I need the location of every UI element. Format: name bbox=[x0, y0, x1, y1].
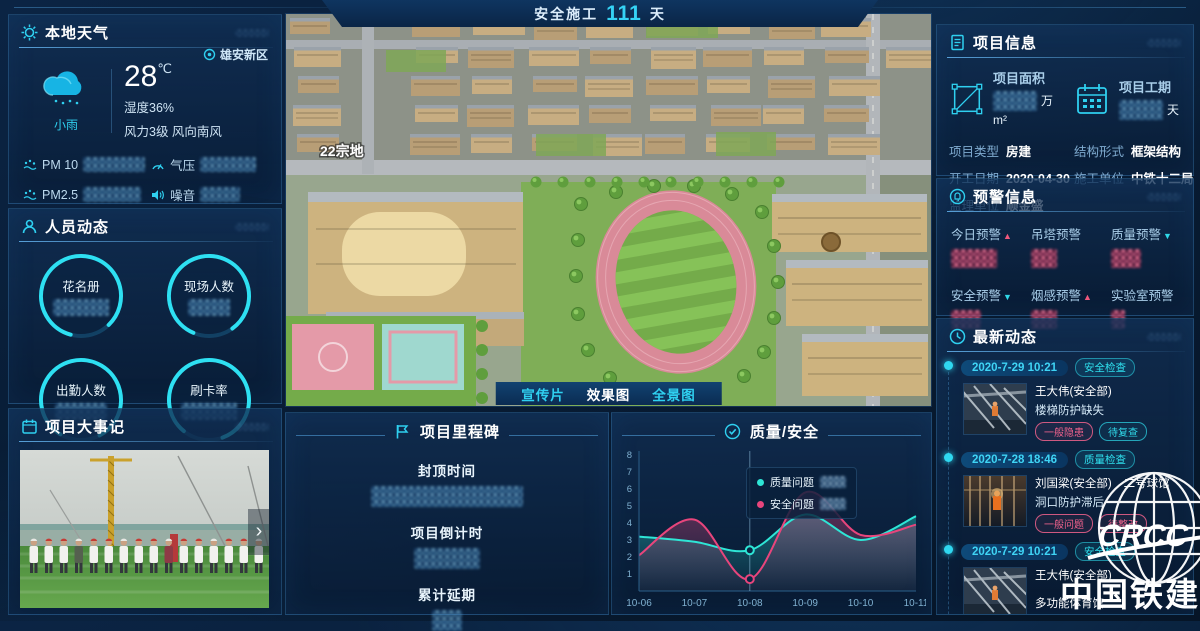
warning-cell-0: 今日预警▲ bbox=[951, 224, 1025, 268]
gear-icon bbox=[21, 24, 38, 41]
update-tags: 一般问题待整改 bbox=[1035, 514, 1170, 533]
weather-header: 本地天气 bbox=[9, 15, 281, 48]
dust-particles-icon bbox=[23, 189, 37, 201]
header-decoration bbox=[1147, 193, 1181, 201]
personnel-ring-0[interactable]: 花名册 bbox=[35, 250, 127, 342]
calendar-icon bbox=[1073, 80, 1111, 118]
update-issue: 楼梯防护缺失 bbox=[1035, 614, 1187, 615]
redacted-value bbox=[1119, 100, 1163, 120]
location-pin-icon bbox=[203, 48, 216, 61]
metric-pm10: PM 10 bbox=[23, 155, 145, 174]
safety-days-banner: 安全施工 111 天 bbox=[322, 0, 878, 28]
update-item: 2020-7-28 18:46 质量检查 刘国梁(安全部)二号球馆 洞口防护滞后… bbox=[961, 450, 1187, 533]
trend-up-icon: ▲ bbox=[1003, 231, 1012, 241]
redacted-value bbox=[188, 299, 230, 316]
warning-label: 实验室预警 bbox=[1111, 285, 1185, 304]
temperature-unit: ℃ bbox=[157, 61, 172, 76]
status-tag: 待整改 bbox=[1099, 514, 1147, 533]
warning-label: 安全预警▼ bbox=[951, 285, 1025, 304]
svg-text:4: 4 bbox=[627, 518, 632, 529]
update-person: 刘国梁(安全部) bbox=[1035, 475, 1112, 491]
redacted-value bbox=[53, 299, 109, 316]
stat-project-area: 项目面积 万m² bbox=[949, 68, 1063, 129]
svg-text:5: 5 bbox=[627, 501, 632, 512]
update-issue: 楼梯防护缺失 bbox=[1035, 402, 1147, 418]
redacted-value bbox=[83, 187, 141, 202]
ring-label: 出勤人数 bbox=[56, 380, 106, 399]
header-wing bbox=[622, 428, 715, 436]
land-parcel-label: 22宗地 bbox=[320, 143, 364, 159]
header-decoration bbox=[1147, 39, 1181, 47]
update-category-badge: 安全检查 bbox=[1075, 358, 1135, 377]
carousel-next-button[interactable]: › bbox=[248, 509, 270, 555]
redacted-value bbox=[414, 548, 480, 569]
milestone-label: 项目倒计时 bbox=[411, 522, 484, 542]
personnel-title: 人员动态 bbox=[45, 216, 109, 237]
redacted-value bbox=[200, 157, 256, 172]
update-date-badge: 2020-7-28 18:46 bbox=[961, 452, 1068, 468]
svg-text:10-06: 10-06 bbox=[626, 598, 652, 609]
project-3d-view[interactable]: 22宗地 宣传片 效果图 全景图 bbox=[285, 13, 932, 407]
svg-text:1: 1 bbox=[627, 569, 632, 580]
tooltip-quality-row: 质量问题 bbox=[757, 474, 846, 490]
panel-quality-safety: 质量/安全 1234567810-0610-0710-0810-0910-101… bbox=[611, 412, 932, 615]
milestone-title: 项目里程碑 bbox=[420, 421, 500, 442]
panel-personnel: 人员动态 花名册现场人数出勤人数刷卡率 bbox=[8, 208, 282, 404]
update-date-badge: 2020-7-29 10:21 bbox=[961, 360, 1068, 376]
ring-label: 现场人数 bbox=[184, 276, 234, 295]
milestone-header: 项目里程碑 bbox=[286, 413, 608, 445]
header-decoration bbox=[235, 29, 269, 37]
svg-text:10-09: 10-09 bbox=[792, 598, 818, 609]
svg-text:6: 6 bbox=[627, 484, 632, 495]
tab-promo-video[interactable]: 宣传片 bbox=[521, 384, 565, 404]
panel-latest-updates: 最新动态 2020-7-29 10:21 安全检查 王大伟(安全部) 楼梯防护缺… bbox=[936, 318, 1194, 615]
header-wing bbox=[828, 428, 921, 436]
person-icon bbox=[21, 218, 38, 235]
panel-project-events: 项目大事记 › bbox=[8, 408, 282, 615]
warnings-grid: 今日预警▲吊塔预警质量预警▼安全预警▼烟感预警▲实验室预警 bbox=[951, 224, 1185, 329]
dust-particles-icon bbox=[23, 159, 37, 171]
updates-list: 2020-7-29 10:21 安全检查 王大伟(安全部) 楼梯防护缺失 一般隐… bbox=[961, 358, 1187, 615]
header-decoration bbox=[1147, 333, 1181, 341]
dashboard: 安全施工 111 天 22宗地 宣传片 效果图 全景图 本地天气 bbox=[0, 0, 1200, 621]
header-decoration bbox=[235, 223, 269, 231]
redacted-value bbox=[820, 498, 846, 510]
shield-check-icon bbox=[724, 423, 741, 440]
alarm-bell-icon bbox=[949, 188, 966, 205]
update-issue: 洞口防护滞后 bbox=[1035, 494, 1170, 510]
redacted-warning-value bbox=[1031, 249, 1057, 268]
tab-panorama[interactable]: 全景图 bbox=[652, 384, 696, 404]
document-icon bbox=[949, 34, 966, 51]
warning-label: 烟感预警▲ bbox=[1031, 285, 1105, 304]
milestone-label: 封顶时间 bbox=[418, 460, 476, 480]
update-location: 二号球馆 bbox=[1124, 475, 1170, 491]
redacted-value bbox=[83, 157, 145, 172]
field-project-type: 项目类型房建 bbox=[949, 141, 1070, 160]
header-wing bbox=[509, 428, 598, 436]
warning-cell-2: 质量预警▼ bbox=[1111, 224, 1185, 268]
redacted-value bbox=[820, 476, 846, 488]
series-dot bbox=[757, 501, 764, 508]
warning-cell-1: 吊塔预警 bbox=[1031, 224, 1105, 268]
update-person: 王大伟(安全部) bbox=[1035, 567, 1112, 583]
event-photo-wrap: › bbox=[20, 450, 270, 613]
stat-project-duration: 项目工期 天 bbox=[1073, 68, 1187, 129]
update-photo-thumbnail[interactable] bbox=[963, 475, 1027, 527]
status-tag: 待复查 bbox=[1099, 422, 1147, 441]
header-decoration bbox=[235, 423, 269, 431]
redacted-value bbox=[371, 486, 523, 507]
panel-project-info: 项目信息 项目面积 万m² bbox=[936, 24, 1194, 176]
view-tabs: 宣传片 效果图 全景图 bbox=[495, 382, 722, 405]
metric-label: PM 10 bbox=[42, 158, 78, 172]
project-info-header: 项目信息 bbox=[937, 25, 1193, 58]
wind-label: 风力3级 风向南风 bbox=[124, 121, 222, 140]
milestone-body: 封顶时间 项目倒计时 累计延期 bbox=[286, 451, 608, 631]
warning-label: 今日预警▲ bbox=[951, 224, 1025, 243]
events-header: 项目大事记 bbox=[9, 409, 281, 442]
ring-label: 刷卡率 bbox=[190, 380, 228, 399]
divider bbox=[111, 69, 112, 133]
3d-render: 22宗地 bbox=[286, 14, 931, 406]
redacted-value bbox=[200, 187, 240, 202]
trend-down-icon: ▼ bbox=[1003, 292, 1012, 302]
updates-title: 最新动态 bbox=[973, 326, 1037, 347]
series-label: 安全问题 bbox=[770, 496, 814, 512]
area-outline-icon bbox=[949, 80, 985, 118]
timeline-dot bbox=[944, 361, 953, 370]
metric-label: PM2.5 bbox=[42, 188, 78, 202]
tooltip-safety-row: 安全问题 bbox=[757, 496, 846, 512]
svg-text:2: 2 bbox=[627, 552, 632, 563]
warning-label: 质量预警▼ bbox=[1111, 224, 1185, 243]
warning-label: 吊塔预警 bbox=[1031, 224, 1105, 243]
humidity-label: 湿度36% bbox=[124, 97, 222, 116]
chart-title: 质量/安全 bbox=[750, 421, 819, 442]
stat-unit: 天 bbox=[1167, 103, 1179, 117]
update-item: 2020-7-29 10:21 安全检查 王大伟(安全部) 楼梯防护缺失 一般隐… bbox=[961, 358, 1187, 441]
tab-render-view[interactable]: 效果图 bbox=[587, 384, 631, 404]
flag-icon bbox=[394, 423, 411, 440]
svg-text:10-07: 10-07 bbox=[682, 598, 708, 609]
calendar-icon bbox=[21, 418, 38, 435]
redacted-value bbox=[993, 91, 1037, 111]
updates-header: 最新动态 bbox=[937, 319, 1193, 352]
weather-metrics: PM 10 气压 PM2.5 bbox=[23, 155, 271, 204]
redacted-warning-value bbox=[1111, 249, 1141, 268]
stat-label: 项目面积 bbox=[993, 68, 1063, 87]
svg-text:10-10: 10-10 bbox=[848, 598, 874, 609]
speaker-icon bbox=[151, 189, 165, 201]
event-photo[interactable] bbox=[20, 450, 269, 608]
chart-header: 质量/安全 bbox=[612, 413, 931, 445]
metric-pressure: 气压 bbox=[151, 155, 271, 174]
header-wing bbox=[296, 428, 385, 436]
update-category-badge: 安全检查 bbox=[1075, 542, 1135, 561]
weather-title: 本地天气 bbox=[45, 22, 109, 43]
timeline-dot bbox=[944, 453, 953, 462]
gauge-icon bbox=[151, 159, 165, 171]
update-category-badge: 质量检查 bbox=[1075, 450, 1135, 469]
update-date-badge: 2020-7-29 10:21 bbox=[961, 544, 1068, 560]
location-badge: 雄安新区 bbox=[203, 46, 268, 63]
timeline-dot bbox=[944, 545, 953, 554]
personnel-header: 人员动态 bbox=[9, 209, 281, 242]
location-label: 雄安新区 bbox=[220, 46, 268, 63]
weather-main: 小雨 28℃ 湿度36% 风力3级 风向南风 bbox=[23, 62, 273, 140]
panel-milestone: 项目里程碑 封顶时间 项目倒计时 累计延期 bbox=[285, 412, 609, 615]
update-photo-thumbnail[interactable] bbox=[963, 567, 1027, 615]
svg-text:7: 7 bbox=[627, 467, 632, 478]
metric-label: 噪音 bbox=[170, 185, 195, 204]
events-title: 项目大事记 bbox=[45, 416, 125, 437]
metric-pm25: PM2.5 bbox=[23, 185, 145, 204]
trend-up-icon: ▲ bbox=[1083, 292, 1092, 302]
safety-label: 安全施工 bbox=[534, 4, 598, 24]
warnings-title: 预警信息 bbox=[973, 186, 1037, 207]
svg-text:10-08: 10-08 bbox=[737, 598, 763, 609]
metric-label: 气压 bbox=[170, 155, 195, 174]
panel-warnings: 预警信息 今日预警▲吊塔预警质量预警▼安全预警▼烟感预警▲实验室预警 bbox=[936, 178, 1194, 316]
update-person: 王大伟(安全部) bbox=[1035, 383, 1112, 399]
project-info-title: 项目信息 bbox=[973, 32, 1037, 53]
update-item: 2020-7-29 10:21 安全检查 王大伟(安全部)多功能体育馆 楼梯防护… bbox=[961, 542, 1187, 615]
field-structure: 结构形式框架结构 bbox=[1074, 141, 1194, 160]
temperature-value: 28 bbox=[124, 60, 157, 93]
status-tag: 一般问题 bbox=[1035, 514, 1093, 533]
stat-label: 项目工期 bbox=[1119, 77, 1179, 96]
clock-icon bbox=[949, 328, 966, 345]
status-tag: 一般隐患 bbox=[1035, 422, 1093, 441]
svg-text:3: 3 bbox=[627, 535, 632, 546]
warnings-header: 预警信息 bbox=[937, 179, 1193, 212]
metric-noise: 噪音 bbox=[151, 185, 271, 204]
redacted-warning-value bbox=[951, 249, 997, 268]
update-location: 多功能体育馆 bbox=[1035, 595, 1104, 611]
project-stats: 项目面积 万m² 项目工期 天 bbox=[949, 68, 1187, 129]
milestone-label: 累计延期 bbox=[418, 584, 476, 604]
svg-text:10-11: 10-11 bbox=[904, 598, 926, 609]
chart-tooltip: 质量问题 安全问题 bbox=[746, 467, 857, 519]
chart-area[interactable]: 1234567810-0610-0710-0810-0910-1010-11 质… bbox=[612, 445, 931, 618]
panel-local-weather: 本地天气 雄安新区 小雨 28℃ 湿度36% 风 bbox=[8, 14, 282, 204]
svg-text:8: 8 bbox=[627, 450, 632, 461]
weather-condition: 小雨 bbox=[23, 116, 109, 133]
series-dot bbox=[757, 479, 764, 486]
ring-label: 花名册 bbox=[62, 276, 100, 295]
rain-cloud-icon bbox=[40, 69, 92, 109]
update-tags: 一般隐患待复查 bbox=[1035, 422, 1147, 441]
personnel-ring-1[interactable]: 现场人数 bbox=[163, 250, 255, 342]
safety-days-unit: 天 bbox=[650, 4, 666, 24]
series-label: 质量问题 bbox=[770, 474, 814, 490]
trend-down-icon: ▼ bbox=[1163, 231, 1172, 241]
safety-days-value: 111 bbox=[606, 3, 642, 24]
update-photo-thumbnail[interactable] bbox=[963, 383, 1027, 435]
